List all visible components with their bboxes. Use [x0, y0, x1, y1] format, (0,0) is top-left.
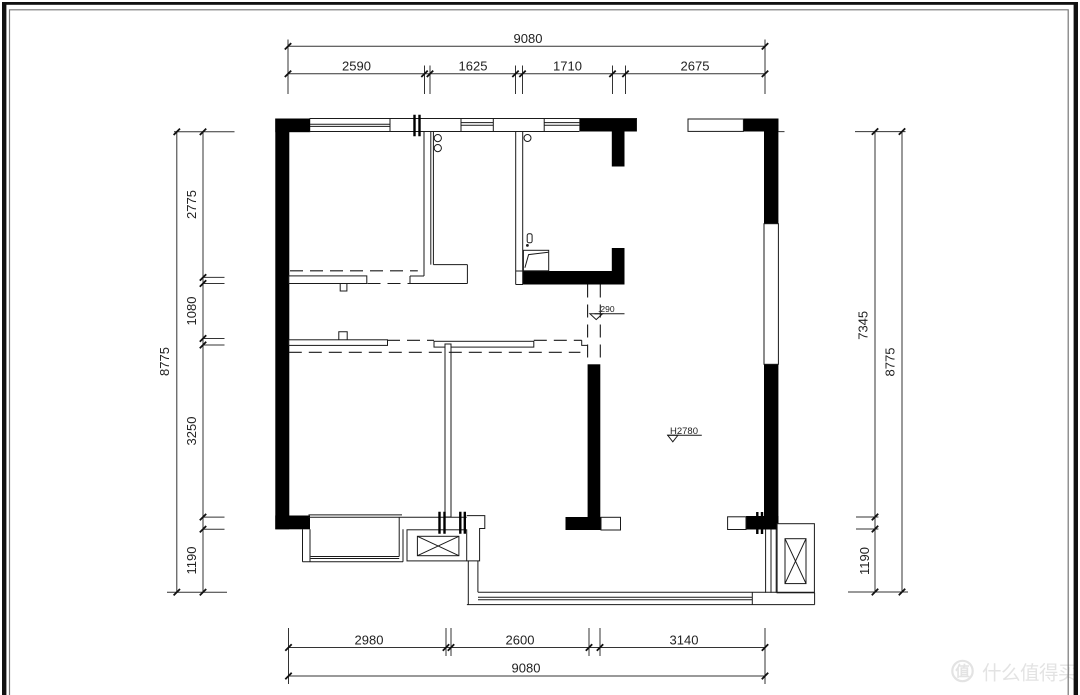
svg-text:1190: 1190 [184, 547, 199, 575]
svg-text:1190: 1190 [857, 547, 872, 575]
svg-text:1625: 1625 [459, 59, 488, 74]
svg-text:9080: 9080 [512, 661, 541, 676]
svg-text:3250: 3250 [184, 417, 199, 446]
svg-text:7345: 7345 [856, 311, 871, 340]
svg-text:2600: 2600 [506, 633, 535, 648]
svg-text:2775: 2775 [184, 190, 199, 219]
svg-text:.290: .290 [598, 304, 615, 314]
svg-text:什么值得买: 什么值得买 [982, 663, 1077, 685]
svg-text:2590: 2590 [342, 59, 371, 74]
svg-text:2980: 2980 [355, 633, 384, 648]
svg-text:1080: 1080 [184, 297, 199, 326]
svg-text:值: 值 [955, 663, 970, 681]
svg-text:9080: 9080 [514, 31, 543, 46]
svg-text:3140: 3140 [670, 633, 699, 648]
svg-text:8775: 8775 [883, 348, 898, 377]
svg-text:8775: 8775 [157, 347, 172, 376]
svg-text:1710: 1710 [553, 59, 582, 74]
svg-text:2675: 2675 [681, 59, 710, 74]
